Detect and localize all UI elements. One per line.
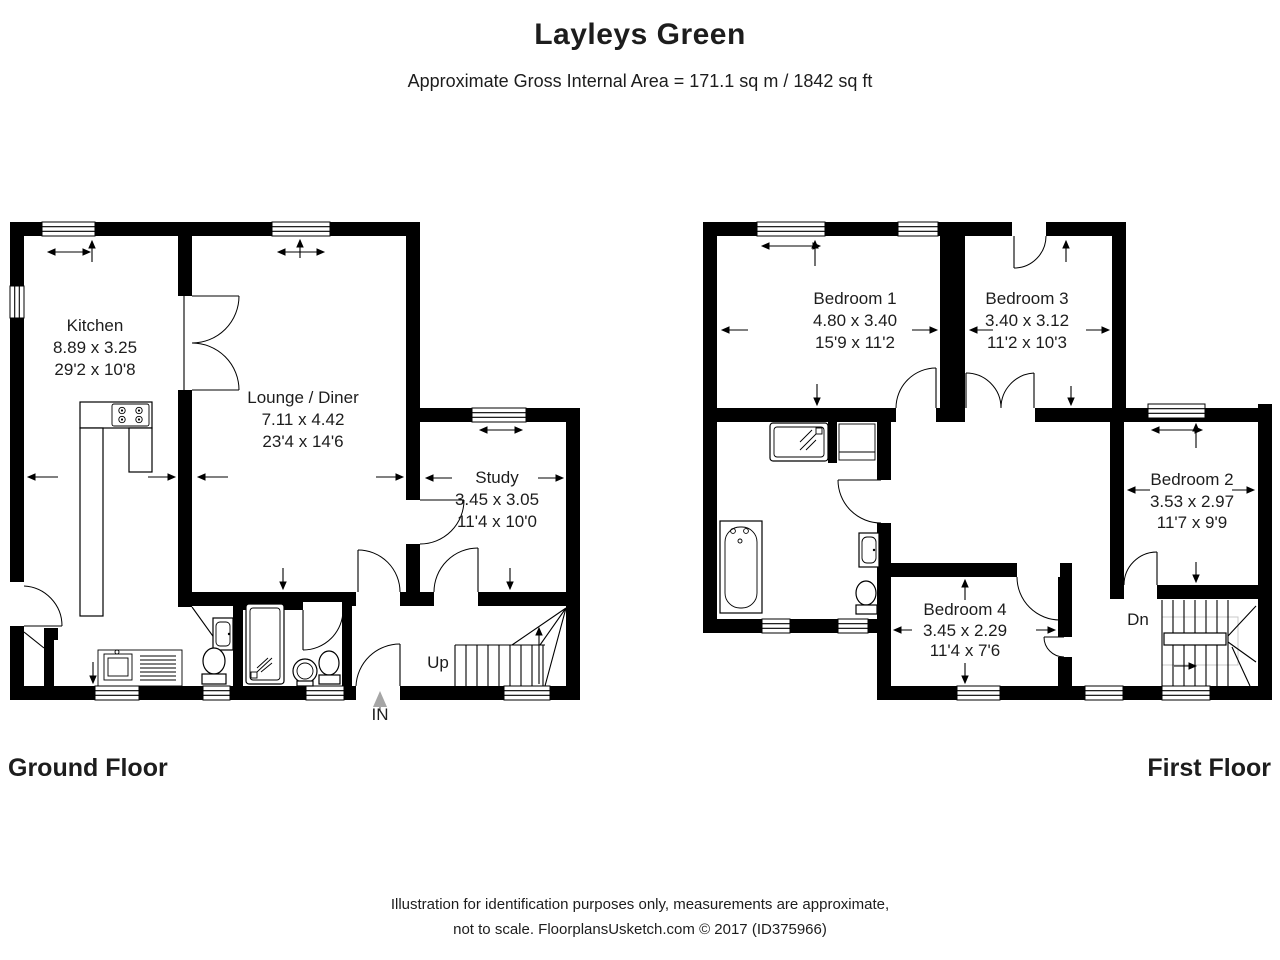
- dimension-arrows: [28, 240, 563, 683]
- basin-icon: [293, 659, 317, 686]
- double-door-arc: [184, 296, 239, 390]
- window: [472, 408, 526, 422]
- window: [306, 686, 344, 700]
- ground-bathroom-fixtures: [202, 604, 340, 686]
- kitchen-counter: [80, 428, 103, 616]
- toilet-icon: [319, 651, 340, 684]
- room-dims-imperial: 11'4 x 7'6: [930, 641, 1000, 660]
- room-dims-metric: 4.80 x 3.40: [813, 311, 897, 330]
- room-name: Bedroom 2: [1150, 470, 1233, 489]
- door-arc: [1124, 552, 1157, 585]
- kitchen-counter: [80, 402, 152, 428]
- room-name: Study: [475, 468, 519, 487]
- airing-cupboard: [839, 424, 875, 460]
- door-arc: [434, 548, 478, 592]
- door-arc: [356, 644, 400, 686]
- room-dims-imperial: 15'9 x 11'2: [815, 333, 895, 352]
- door-arc: [1017, 577, 1060, 620]
- room-dims-imperial: 23'4 x 14'6: [262, 432, 343, 451]
- room-dims-metric: 3.40 x 3.12: [985, 311, 1069, 330]
- room-dims-metric: 3.53 x 2.97: [1150, 492, 1234, 511]
- window: [95, 686, 139, 700]
- room-dims-metric: 7.11 x 4.42: [262, 410, 345, 429]
- room-name: Kitchen: [67, 316, 124, 335]
- room-dims-metric: 8.89 x 3.25: [53, 338, 137, 357]
- window: [42, 222, 95, 236]
- ground-floor-plan: Kitchen 8.89 x 3.25 29'2 x 10'8 Lounge /…: [10, 222, 580, 724]
- stairs-up-icon: [455, 608, 566, 686]
- stairs-up-label: Up: [427, 653, 449, 672]
- room-dims-imperial: 11'4 x 10'0: [457, 512, 537, 531]
- window: [504, 686, 550, 700]
- disclaimer-line-2: not to scale. FloorplansUsketch.com © 20…: [0, 917, 1280, 942]
- window: [1085, 686, 1123, 700]
- kitchen-fixtures: [80, 402, 182, 686]
- shower-icon: [246, 604, 284, 684]
- toilet-icon: [856, 581, 877, 614]
- door-arc: [303, 610, 343, 650]
- room-name: Bedroom 3: [985, 289, 1068, 308]
- closet-door: [24, 632, 44, 648]
- floorplan-page: Layleys Green Approximate Gross Internal…: [0, 0, 1280, 960]
- door-arc: [24, 586, 62, 626]
- door-arc: [896, 368, 936, 408]
- kitchen-counter: [129, 428, 152, 472]
- door-arc: [838, 480, 881, 523]
- sink-icon: [98, 650, 182, 686]
- stairs-down-icon: [1162, 600, 1256, 686]
- first-room-labels: Bedroom 1 4.80 x 3.40 15'9 x 11'2 Bedroo…: [813, 289, 1234, 660]
- first-floor-label: First Floor: [1147, 754, 1271, 783]
- window: [1148, 404, 1205, 418]
- entrance-label: IN: [372, 705, 389, 724]
- room-dims-metric: 3.45 x 3.05: [455, 490, 539, 509]
- first-bathroom-fixtures: [720, 423, 879, 614]
- room-dims-imperial: 11'7 x 9'9: [1157, 513, 1227, 532]
- door-arc: [358, 550, 400, 592]
- room-name: Bedroom 1: [813, 289, 896, 308]
- window: [272, 222, 330, 236]
- basin-icon: [859, 533, 879, 567]
- toilet-icon: [202, 648, 226, 684]
- stairs-down-label: Dn: [1127, 610, 1149, 629]
- window: [762, 619, 790, 633]
- shower-icon: [770, 423, 828, 461]
- basin-icon: [213, 618, 233, 650]
- window: [203, 686, 230, 700]
- room-name: Lounge / Diner: [247, 388, 359, 407]
- first-floor-plan: Bedroom 1 4.80 x 3.40 15'9 x 11'2 Bedroo…: [703, 222, 1272, 700]
- window: [10, 286, 24, 318]
- window: [1162, 686, 1210, 700]
- ground-floor-label: Ground Floor: [8, 754, 168, 783]
- window: [898, 222, 938, 236]
- floorplan-canvas: Kitchen 8.89 x 3.25 29'2 x 10'8 Lounge /…: [0, 0, 1280, 960]
- double-door-arc: [966, 373, 1034, 408]
- window: [957, 686, 1000, 700]
- room-name: Bedroom 4: [923, 600, 1006, 619]
- door-arc: [1014, 236, 1046, 268]
- disclaimer-line-1: Illustration for identification purposes…: [0, 892, 1280, 917]
- window: [757, 222, 825, 236]
- room-dims-metric: 3.45 x 2.29: [923, 621, 1007, 640]
- window: [838, 619, 868, 633]
- bathtub-icon: [720, 521, 762, 613]
- room-dims-imperial: 11'2 x 10'3: [987, 333, 1067, 352]
- room-dims-imperial: 29'2 x 10'8: [54, 360, 135, 379]
